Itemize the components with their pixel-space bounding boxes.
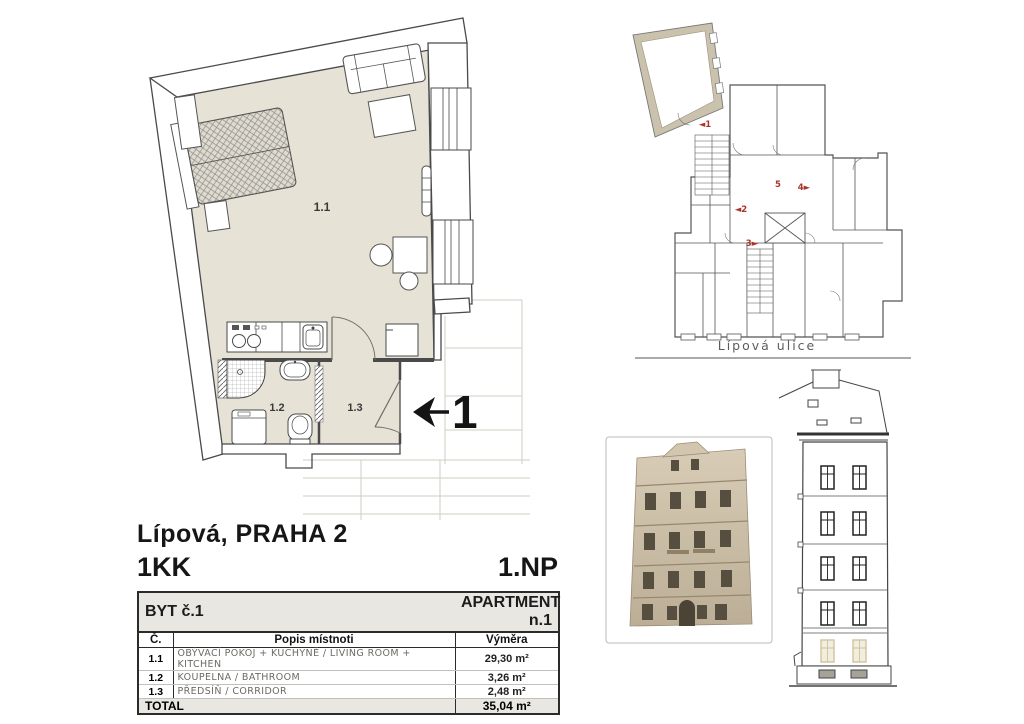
elevation-body	[802, 442, 888, 666]
floorplan-sheet: 1.1 1.2 1.3 1	[0, 0, 1024, 724]
fridge	[386, 324, 418, 356]
building-elevation-drawing	[775, 356, 965, 712]
washbasin	[280, 360, 310, 380]
table-row: 1.1 OBÝVACÍ POKOJ + KUCHYNĚ / LIVING ROO…	[138, 648, 559, 671]
washing-machine	[232, 410, 266, 444]
stove-burner	[233, 335, 246, 348]
entrance-portal	[679, 600, 695, 626]
elevator-shaft	[765, 213, 805, 243]
table-title-cs: BYT č.1	[138, 592, 455, 632]
room-label-bathroom: 1.2	[269, 402, 284, 414]
desk	[393, 237, 427, 273]
staircase-upper	[695, 135, 729, 195]
unit-marker-3: 3►	[746, 239, 759, 249]
total-label: TOTAL	[138, 699, 455, 715]
street-label: Lípová ulice	[718, 338, 816, 353]
apartment-floor-plan: 1.1 1.2 1.3 1	[128, 8, 552, 520]
chimney	[813, 370, 839, 388]
room-label-corridor: 1.3	[347, 402, 362, 414]
stool	[400, 272, 418, 290]
unit-marker-4: 4►	[798, 183, 811, 193]
staircase-lower	[747, 249, 773, 313]
roof-vent	[808, 400, 818, 407]
page-title-address: Lípová, PRAHA 2	[137, 520, 558, 549]
facade	[630, 442, 752, 626]
side-table	[368, 95, 416, 138]
nightstand	[204, 201, 230, 232]
table-title-en: APARTMENT n.1	[455, 592, 559, 632]
unit-area-table: BYT č.1 APARTMENT n.1 Č. Popis místnoti …	[137, 591, 560, 715]
table-title-row: BYT č.1 APARTMENT n.1	[138, 592, 559, 632]
dormer-vent	[851, 418, 861, 423]
table-row: 1.3 PŘEDSÍŇ / CORRIDOR 2,48 m²	[138, 685, 559, 699]
title-block: Lípová, PRAHA 2 1KK 1.NP	[137, 520, 558, 583]
dormer-vent	[817, 420, 827, 425]
room-label-living: 1.1	[314, 200, 331, 214]
kitchen-counter	[227, 322, 327, 352]
col-description: Popis místnoti	[173, 632, 455, 648]
table-column-header: Č. Popis místnoti Výměra	[138, 632, 559, 648]
sliding-door	[315, 366, 323, 422]
building-photo	[605, 436, 773, 644]
unit-layout-label: 1KK	[137, 552, 191, 583]
basement-window	[851, 670, 867, 678]
entrance-number: 1	[452, 386, 478, 438]
floor-label: 1.NP	[498, 552, 558, 583]
total-area: 35,04 m²	[455, 699, 559, 715]
toilet	[288, 414, 312, 444]
chair	[370, 244, 392, 266]
unit-marker-2: ◄2	[735, 205, 748, 215]
unit-marker-5: 5	[775, 180, 781, 190]
unit-marker-1: ◄1	[699, 120, 712, 130]
col-area: Výměra	[455, 632, 559, 648]
building-site-plan: ◄1 ◄2 3► 4► 5 Lípová ulice	[615, 5, 920, 370]
table-total-row: TOTAL 35,04 m²	[138, 699, 559, 715]
radiator	[422, 166, 431, 216]
col-number: Č.	[138, 632, 173, 648]
stove-burner	[248, 335, 261, 348]
table-row: 1.2 KOUPELNA / BATHROOM 3,26 m²	[138, 671, 559, 685]
basement-window	[819, 670, 835, 678]
wall-hatch	[218, 360, 227, 398]
